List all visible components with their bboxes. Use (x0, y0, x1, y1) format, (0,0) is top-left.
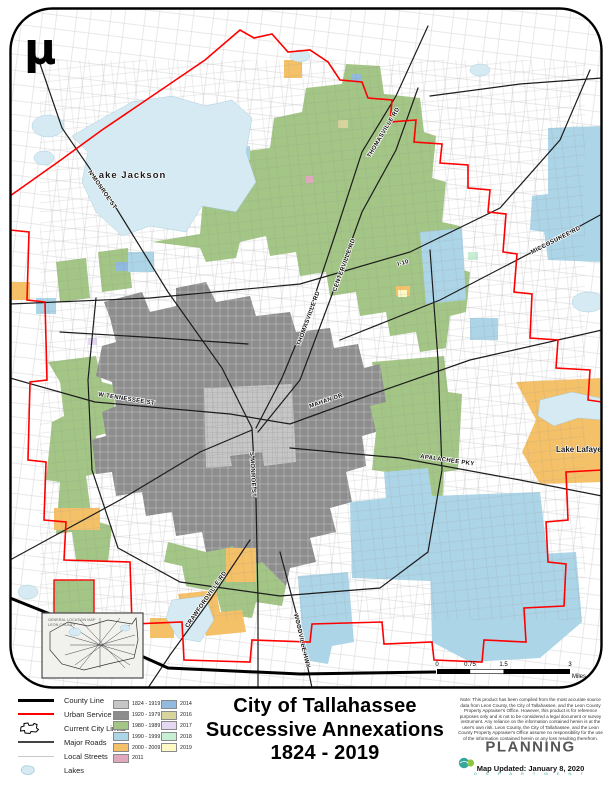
legend-period: 2011 (113, 753, 160, 764)
scale-tick-075: 0.75 (464, 662, 476, 668)
city-limits-icon (18, 722, 58, 735)
inset-map: GENERAL LOCATION MAP LEON COUNTY (42, 613, 143, 678)
swatch-2000-2009 (113, 743, 129, 752)
legend-period: 2016 (161, 710, 192, 721)
disclaimer-note: Note: This product has been compiled fro… (458, 697, 603, 741)
county-line-icon (18, 699, 58, 702)
legend-local-streets: Local Streets (18, 749, 118, 763)
legend-period: 1920 - 1979 (113, 710, 160, 721)
north-arrow: µ (24, 24, 56, 75)
legend-period: 2018 (161, 731, 192, 742)
line-legend: County Line Urban Service Area Current C… (18, 693, 118, 777)
legend-period: 2019 (161, 742, 192, 753)
swatch-1990-1999 (113, 732, 129, 741)
swatch-2017 (161, 721, 177, 730)
swatch-1824-1919 (113, 700, 129, 709)
scale-tick-15: 1.5 (499, 662, 508, 668)
title-line2: Successive Annexations (190, 719, 460, 743)
period-legend-col1: 1824 - 1919 1920 - 1979 1980 - 1989 1990… (113, 699, 160, 764)
title-line1: City of Tallahassee (190, 695, 460, 719)
period-legend-col2: 2014 2016 2017 2018 2019 (161, 699, 192, 753)
legend-county-line: County Line (18, 693, 118, 707)
swatch-2016 (161, 711, 177, 720)
legend-lakes: Lakes (18, 763, 118, 777)
swatch-2014 (161, 700, 177, 709)
legend-period: 2014 (161, 699, 192, 710)
legend-period: 2000 - 2009 (113, 742, 160, 753)
planning-logo-text: PLANNING (485, 738, 575, 755)
local-streets-icon (18, 756, 58, 757)
swatch-2018 (161, 732, 177, 741)
lakes-icon (18, 764, 58, 776)
legend-urban-service-area: Urban Service Area (18, 707, 118, 721)
legend-period: 1824 - 1919 (113, 699, 160, 710)
urban-service-area-icon (18, 713, 58, 715)
swatch-2011 (113, 754, 129, 763)
swatch-2019 (161, 743, 177, 752)
swatch-1920-1979 (113, 711, 129, 720)
legend-city-limits: Current City Limits (18, 721, 118, 735)
map-sheet: Lake Jackson Lake Lafayette N MONROE ST … (0, 0, 612, 792)
major-roads-icon (18, 741, 58, 743)
legend-period: 1990 - 1999 (113, 731, 160, 742)
lake-jackson-label: Lake Jackson (92, 170, 166, 181)
swatch-1980-1989 (113, 721, 129, 730)
legend-major-roads: Major Roads (18, 735, 118, 749)
inset-title-line2: LEON COUNTY (48, 623, 76, 627)
lake-lafayette-label: Lake Lafayette (556, 445, 612, 454)
annexation-map: Lake Jackson Lake Lafayette N MONROE ST … (0, 0, 612, 692)
legend-period: 1980 - 1989 (113, 721, 160, 732)
page-title: City of Tallahassee Successive Annexatio… (190, 695, 460, 766)
title-line3: 1824 - 2019 (190, 742, 460, 766)
inset-title-line1: GENERAL LOCATION MAP (48, 618, 96, 622)
legend-period: 2017 (161, 721, 192, 732)
updated-date: Map Updated: January 8, 2020 (458, 764, 603, 773)
